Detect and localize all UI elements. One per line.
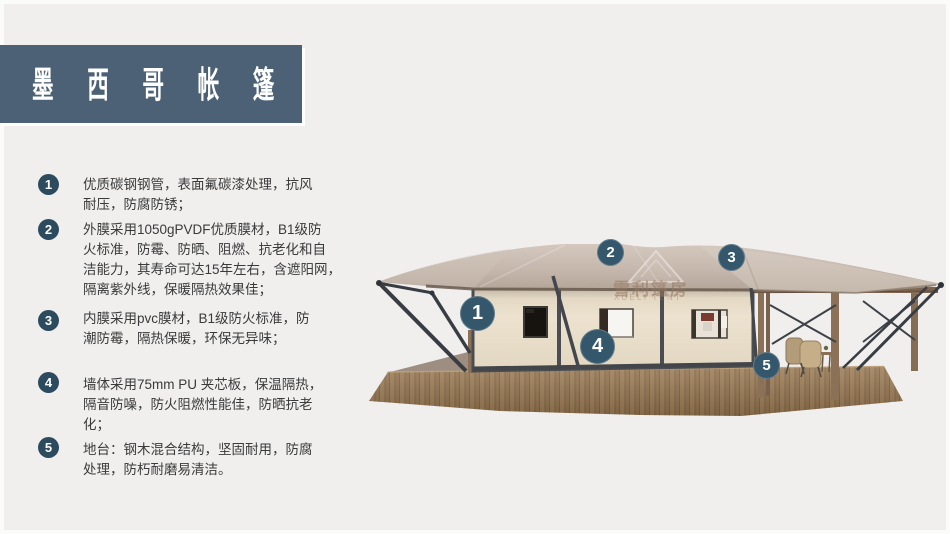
watermark-en: XUELI TENT	[614, 293, 682, 302]
window-3	[692, 310, 727, 338]
callout-3: 3	[718, 244, 745, 271]
callout-4: 4	[580, 329, 615, 364]
deck-platform	[369, 366, 903, 416]
window-1	[524, 307, 547, 337]
slide: 墨西哥帐篷 1 优质碳钢钢管，表面氟碳漆处理，抗风 耐压，防腐防锈； 2 外膜采…	[0, 0, 950, 534]
wall-modules	[468, 287, 753, 373]
right-guy-poles	[843, 282, 944, 370]
tent-illustration	[0, 0, 950, 534]
callout-1: 1	[460, 296, 495, 331]
callout-5: 5	[753, 352, 780, 379]
callout-2: 2	[597, 239, 624, 266]
